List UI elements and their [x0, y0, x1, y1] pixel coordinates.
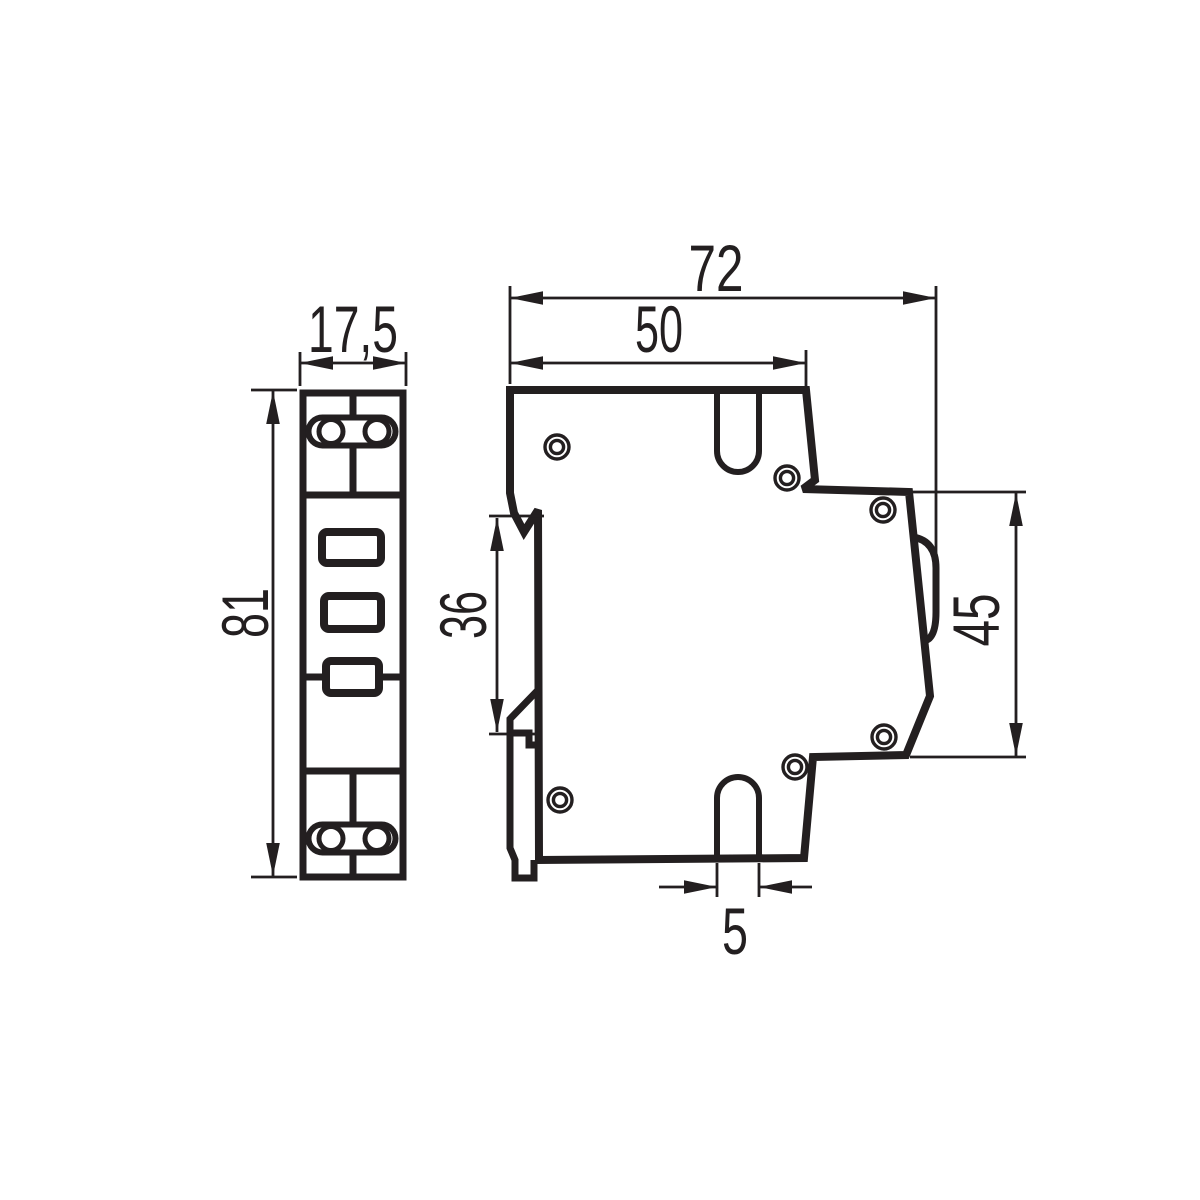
- rivet-right-bottom: [872, 725, 896, 749]
- rivet-inner-ring: [876, 503, 889, 516]
- indicator-window-1: [322, 532, 381, 563]
- front-view: [303, 393, 403, 877]
- rivet-right-top: [871, 498, 895, 522]
- arrowhead-top: [490, 518, 504, 551]
- arrowhead-top: [1009, 493, 1023, 526]
- arrowhead-bottom: [490, 699, 504, 732]
- dim-label-side-upper-depth: 50: [635, 292, 683, 366]
- arrowhead-left: [510, 356, 543, 370]
- dim-label-side-front-height: 45: [939, 594, 1013, 647]
- bottom-terminal-screw-right: [365, 827, 389, 851]
- dim-front-height: 81: [208, 390, 297, 877]
- dim-front-width: 17,5: [300, 292, 406, 386]
- rivet-inner-ring: [788, 760, 801, 773]
- indicator-window-3: [326, 661, 379, 693]
- side-view: [510, 390, 936, 878]
- technical-drawing-page: 17,5 81 72 50 36 45 5: [0, 0, 1200, 1200]
- rivet-bottom-left: [548, 788, 572, 812]
- dim-label-side-overall-depth: 72: [689, 231, 744, 305]
- dim-label-din-recess-height: 36: [426, 591, 500, 639]
- arrowhead-top: [266, 391, 280, 424]
- dimensional-drawing: 17,5 81 72 50 36 45 5: [0, 0, 1200, 1200]
- rivet-inner-ring: [550, 440, 563, 453]
- arrowhead-right: [759, 880, 792, 894]
- dim-label-front-height: 81: [208, 588, 282, 638]
- rivet-inner-ring: [877, 730, 890, 743]
- rivet-bottom-middle: [783, 755, 807, 779]
- arrowhead-left: [510, 291, 543, 305]
- top-terminal-screw-right: [365, 420, 389, 444]
- rivet-inner-ring: [780, 471, 793, 484]
- dim-side-upper-depth: 50: [510, 292, 806, 386]
- dim-label-mount-slot-width: 5: [722, 894, 748, 968]
- rivet-top-middle: [775, 466, 799, 490]
- top-terminal-screw-left: [319, 420, 343, 444]
- arrowhead-bottom: [1009, 723, 1023, 756]
- indicator-window-2: [324, 596, 381, 629]
- arrowhead-right: [773, 356, 806, 370]
- arrowhead-left: [684, 880, 717, 894]
- rivet-top-left: [545, 435, 569, 459]
- rivet-inner-ring: [553, 793, 566, 806]
- dim-label-front-width: 17,5: [308, 292, 398, 366]
- arrowhead-bottom: [266, 843, 280, 876]
- din-clip-foot: [510, 690, 538, 878]
- bottom-terminal-screw-left: [319, 827, 343, 851]
- arrowhead-right: [903, 291, 936, 305]
- dim-mount-slot-width: 5: [659, 863, 812, 968]
